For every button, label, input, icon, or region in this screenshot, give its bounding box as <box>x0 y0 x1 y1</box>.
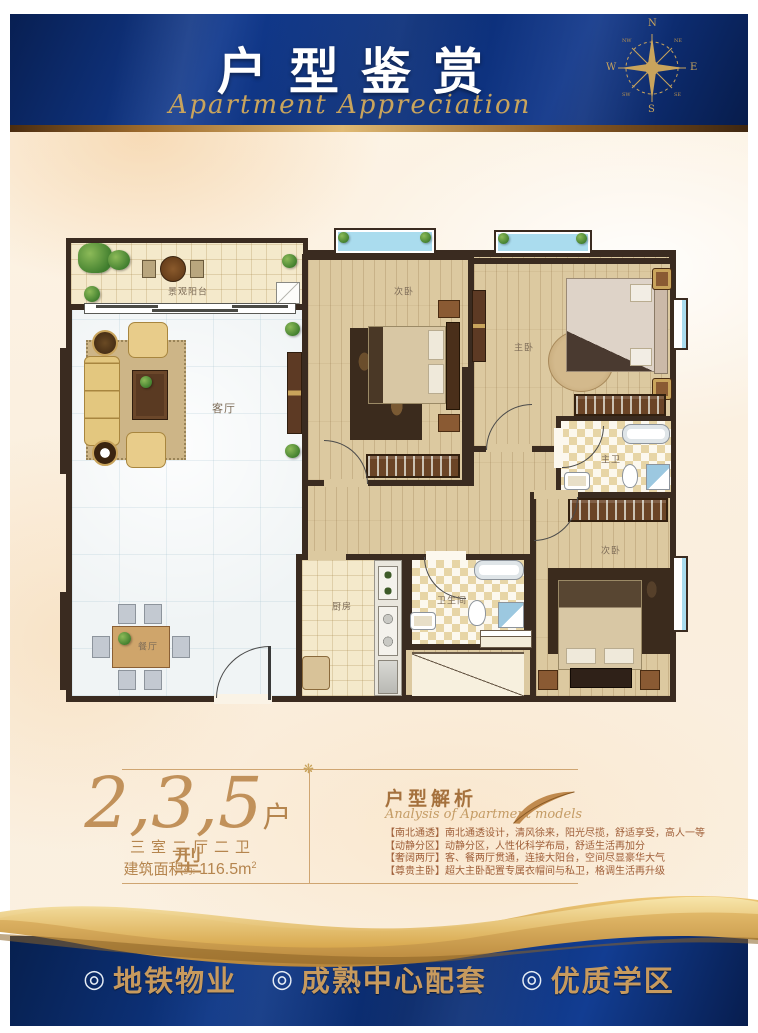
balcony-plant-icon <box>84 286 100 302</box>
windowsill-plant-icon <box>576 233 587 244</box>
entry-foyer <box>412 652 524 696</box>
analysis-bullet: 【动静分区】动静分区，人性化科学布局，舒适生活再加分 <box>385 841 705 854</box>
balcony-plant-icon <box>108 250 130 270</box>
room-label-master-bath: 主卫 <box>601 453 621 466</box>
master-bathtub <box>622 424 670 444</box>
bedroom-right-headboard <box>570 668 632 688</box>
analysis-bullets: 【南北通透】南北通透设计，清风徐来，阳光尽揽，舒适享受，高人一等 【动静分区】动… <box>385 828 705 878</box>
footer-banner: ◎ 地铁物业 ◎ 成熟中心配套 ◎ 优质学区 <box>10 936 748 1026</box>
bathroom-sink <box>410 612 436 630</box>
master-headboard <box>654 276 668 374</box>
bathtub <box>474 560 524 580</box>
footer-item: ◎ 优质学区 <box>521 958 675 1000</box>
compass-icon: N S W E NW NE SW SE <box>606 20 698 116</box>
dining-flower-icon <box>118 632 131 645</box>
master-wardrobe <box>574 394 666 416</box>
room-label-master-bedroom: 主卧 <box>514 341 534 354</box>
analysis-bullet: 【南北通透】南北通透设计，清风徐来，阳光尽揽，舒适享受，高人一等 <box>385 828 705 841</box>
master-sink <box>564 472 590 490</box>
living-side-table <box>92 440 118 466</box>
nightstand <box>640 670 660 690</box>
living-plant-icon <box>285 444 300 458</box>
header-gold-bar <box>10 125 748 132</box>
compass-nw: NW <box>622 38 632 44</box>
bedroom-right-wardrobe <box>568 498 668 522</box>
bed-pillow <box>630 284 652 302</box>
footer-item-label: 成熟中心配套 <box>301 958 487 1000</box>
model-number: 2,3,5 <box>84 762 262 844</box>
poster: 户型鉴赏 Apartment Appreciation N S W E NW <box>0 0 758 1033</box>
balcony-plant-icon <box>78 243 112 273</box>
balcony-table <box>160 256 186 282</box>
bed-pillow <box>428 364 444 394</box>
ring-bullet-icon: ◎ <box>521 967 543 992</box>
area-label: 建筑面积 <box>124 861 184 878</box>
windowsill-plant-icon <box>338 232 349 243</box>
area-approx: 约: <box>184 866 196 876</box>
wall-pier <box>60 348 72 474</box>
side-window-bedroom-right <box>672 556 688 632</box>
dining-chair <box>172 636 190 658</box>
table-plant-icon <box>140 376 152 388</box>
footer-item: ◎ 地铁物业 <box>83 958 237 1000</box>
wall-pier <box>462 367 474 485</box>
kitchen-fridge <box>302 656 330 690</box>
balcony-plant-icon <box>282 254 297 268</box>
master-tv-cabinet <box>472 290 486 362</box>
footer-item-label: 地铁物业 <box>113 958 237 1000</box>
shower <box>498 602 524 628</box>
living-plant-icon <box>285 322 300 336</box>
room-label-balcony: 景观阳台 <box>168 285 208 298</box>
toilet <box>468 600 486 626</box>
compass-se: SE <box>674 92 681 98</box>
master-toilet <box>622 464 638 488</box>
sliding-rail <box>152 309 238 312</box>
bed-pillow <box>428 330 444 360</box>
nightstand <box>538 670 558 690</box>
bed-pillow <box>630 348 652 366</box>
bay-window-bedroom-top <box>334 228 436 255</box>
area-line: 建筑面积约: 116.5m2 <box>80 858 300 879</box>
footer-item: ◎ 成熟中心配套 <box>271 958 487 1000</box>
room-label-dining: 餐厅 <box>138 640 158 653</box>
compass-ne: NE <box>674 38 682 44</box>
compass-s: S <box>648 104 655 115</box>
footer-item-label: 优质学区 <box>551 958 675 1000</box>
kitchen-door-gap <box>308 551 346 560</box>
page-subtitle: Apartment Appreciation <box>0 90 700 120</box>
area-sup: 2 <box>251 860 256 870</box>
bed-pillow <box>566 648 596 664</box>
room-label-bathroom: 卫生间 <box>437 594 467 607</box>
room-label-kitchen: 厨房 <box>332 600 352 613</box>
divider-ornament-icon: ❋ <box>303 761 314 777</box>
living-armchair <box>128 322 168 358</box>
ring-bullet-icon: ◎ <box>271 967 293 992</box>
dining-chair <box>118 670 136 690</box>
compass-e: E <box>690 62 697 73</box>
kitchen-stove <box>378 566 398 600</box>
windowsill-plant-icon <box>420 232 431 243</box>
area-value: 116.5m <box>199 861 251 878</box>
compass-w: W <box>606 62 616 73</box>
balcony-cabinet <box>276 282 300 304</box>
bedroom-top-desk <box>438 414 460 432</box>
living-armchair <box>126 432 166 468</box>
side-window-master <box>672 298 688 350</box>
master-nightstand <box>652 268 672 290</box>
room-label-living: 客厅 <box>212 400 236 416</box>
entry-step <box>480 630 532 648</box>
windowsill-plant-icon <box>498 233 509 244</box>
bedroom-top-wardrobe <box>366 454 460 478</box>
balcony-chair <box>142 260 156 278</box>
living-side-table <box>92 330 118 356</box>
sliding-rail <box>96 305 158 308</box>
layout-spec: 三室二厅二卫 <box>80 836 300 857</box>
dining-chair <box>144 604 162 624</box>
room-label-bedroom-right: 次卧 <box>601 544 621 557</box>
dining-chair <box>92 636 110 658</box>
master-shower <box>646 464 670 490</box>
dining-chair <box>144 670 162 690</box>
entry-door-leaf <box>268 646 271 700</box>
living-sofa <box>84 356 120 446</box>
kitchen-appliance <box>378 660 398 694</box>
footer-items: ◎ 地铁物业 ◎ 成熟中心配套 ◎ 优质学区 <box>10 958 748 1000</box>
bedroom-top-desk <box>438 300 460 318</box>
sliding-rail <box>232 305 288 308</box>
compass-star <box>606 20 698 116</box>
compass-sw: SW <box>622 92 631 98</box>
analysis-bullet: 【奢阔两厅】客、餐两厅贯通，连接大阳台，空间尽显豪华大气 <box>385 853 705 866</box>
info-divider <box>309 770 310 883</box>
living-tv-cabinet <box>287 352 302 434</box>
info-bottom-rule <box>122 883 578 884</box>
bedroom-top-headboard <box>446 322 460 410</box>
wall-pier <box>60 592 72 690</box>
room-label-bedroom-top: 次卧 <box>394 285 414 298</box>
kitchen-sink <box>378 606 398 656</box>
compass-n: N <box>648 18 657 29</box>
dining-chair <box>118 604 136 624</box>
bed-pillow <box>604 648 634 664</box>
balcony-chair <box>190 260 204 278</box>
ring-bullet-icon: ◎ <box>83 967 105 992</box>
analysis-bullet: 【尊贵主卧】超大主卧配置专属衣帽间与私卫，格调生活再升级 <box>385 866 705 879</box>
